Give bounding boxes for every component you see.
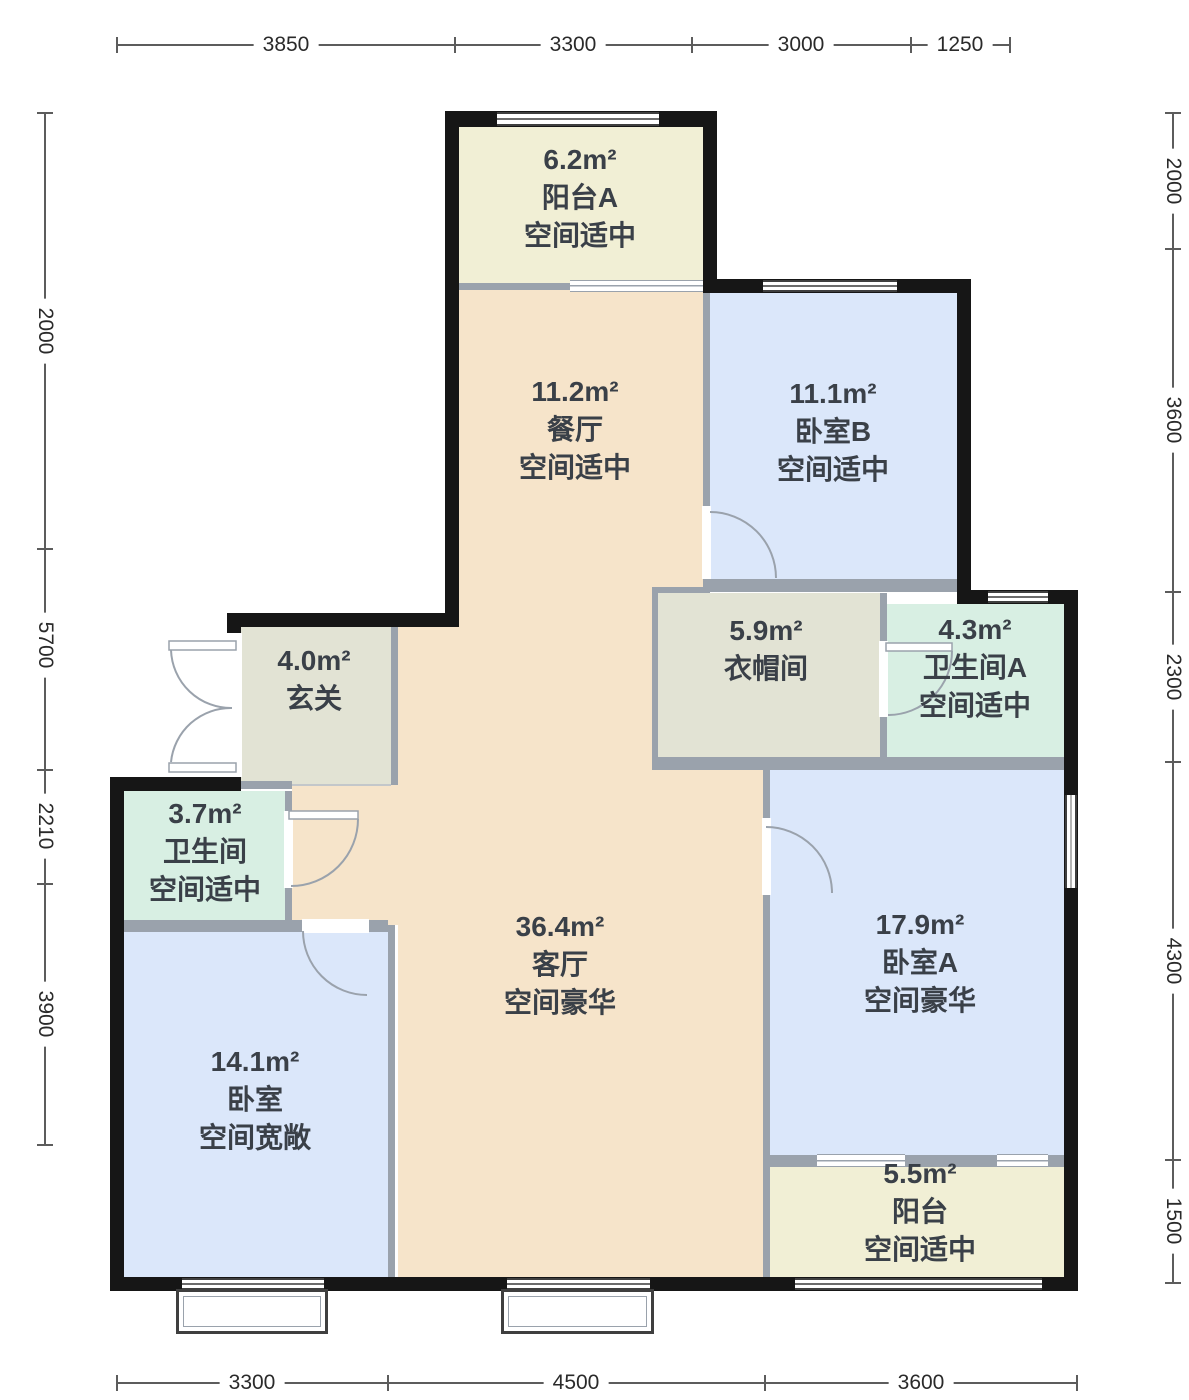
dim-left-4: 3900 [33,982,57,1047]
room-note: 空间适中 [524,217,636,255]
dim-right-3: 2300 [1161,645,1185,710]
room-note: 空间宽敞 [199,1119,311,1157]
room-name: 阳台A [524,179,636,217]
room-label-entry: 4.0m² 玄关 [277,642,350,718]
room-label-bedroom: 14.1m² 卧室 空间宽敞 [199,1043,311,1157]
room-name: 卧室B [777,413,889,451]
room-note: 空间豪华 [864,982,976,1020]
room-name: 衣帽间 [724,650,808,688]
area-value: 5.5m² [864,1155,976,1193]
door-leaf-entry-lower [169,763,236,772]
dim-cap [37,112,53,114]
room-name: 卫生间 [149,833,261,871]
dim-tick [454,37,456,53]
area-value: 11.1m² [777,375,889,413]
dim-bottom-2: 4500 [544,1371,609,1395]
dim-tick [37,883,53,885]
dim-bottom-1: 3300 [220,1371,285,1395]
room-note: 空间适中 [919,687,1031,725]
dim-left-1: 2000 [33,299,57,364]
room-name: 餐厅 [519,411,631,449]
dim-top-3: 3000 [769,33,834,57]
dim-left-2: 5700 [33,613,57,678]
dim-cap [1165,112,1181,114]
door-arc-bedroomA [766,827,832,893]
door-leaf-entry-upper [169,641,236,650]
room-note: 空间适中 [864,1231,976,1269]
room-label-balcony-a: 6.2m² 阳台A 空间适中 [524,141,636,255]
dim-cap [1009,37,1011,53]
room-note: 空间豪华 [504,984,616,1022]
dim-right-5: 1500 [1161,1189,1185,1254]
dim-tick [1165,591,1181,593]
area-value: 17.9m² [864,906,976,944]
dim-right-2: 3600 [1161,388,1185,453]
area-value: 3.7m² [149,795,261,833]
dim-tick [1165,1159,1181,1161]
room-label-bath: 3.7m² 卫生间 空间适中 [149,795,261,909]
dim-tick [37,769,53,771]
area-value: 5.9m² [724,612,808,650]
area-value: 36.4m² [504,908,616,946]
dim-tick [910,37,912,53]
dim-tick [1165,248,1181,250]
room-name: 玄关 [277,680,350,718]
room-note: 空间适中 [519,449,631,487]
room-name: 卫生间A [919,649,1031,687]
area-value: 14.1m² [199,1043,311,1081]
dim-left-3: 2210 [33,794,57,859]
door-arc-bath [291,819,358,886]
area-value: 6.2m² [524,141,636,179]
dim-cap [116,37,118,53]
door-arc-bedroom [303,931,367,995]
dim-right-4: 4300 [1161,929,1185,994]
door-arc-entry-lower [171,708,232,762]
dim-tick [1165,761,1181,763]
room-note: 空间适中 [777,451,889,489]
area-value: 4.3m² [919,611,1031,649]
door-leaf-bath [289,811,358,819]
floor-plan: 6.2m² 阳台A 空间适中 11.2m² 餐厅 空间适中 11.1m² 卧室B… [0,0,1189,1400]
dim-cap [1165,1282,1181,1284]
room-name: 卧室 [199,1081,311,1119]
room-name: 客厅 [504,946,616,984]
room-label-dining: 11.2m² 餐厅 空间适中 [519,373,631,487]
room-label-bedroom-a: 17.9m² 卧室A 空间豪华 [864,906,976,1020]
room-name: 卧室A [864,944,976,982]
room-label-balcony: 5.5m² 阳台 空间适中 [864,1155,976,1269]
dim-tick [37,548,53,550]
room-label-bedroom-b: 11.1m² 卧室B 空间适中 [777,375,889,489]
dim-tick [764,1375,766,1391]
dim-top-2: 3300 [541,33,606,57]
dim-cap [37,1144,53,1146]
dim-top-4: 1250 [928,33,993,57]
room-name: 阳台 [864,1193,976,1231]
dim-cap [116,1375,118,1391]
area-value: 11.2m² [519,373,631,411]
dim-tick [387,1375,389,1391]
dim-cap [1076,1375,1078,1391]
door-arc-bedroomB [710,512,776,578]
dim-top-1: 3850 [254,33,319,57]
room-label-living: 36.4m² 客厅 空间豪华 [504,908,616,1022]
room-note: 空间适中 [149,871,261,909]
door-arc-entry-upper [171,650,232,708]
room-label-closet: 5.9m² 衣帽间 [724,612,808,688]
area-value: 4.0m² [277,642,350,680]
dim-tick [691,37,693,53]
dim-bottom-3: 3600 [889,1371,954,1395]
dim-right-1: 2000 [1161,149,1185,214]
room-label-bath-a: 4.3m² 卫生间A 空间适中 [919,611,1031,725]
